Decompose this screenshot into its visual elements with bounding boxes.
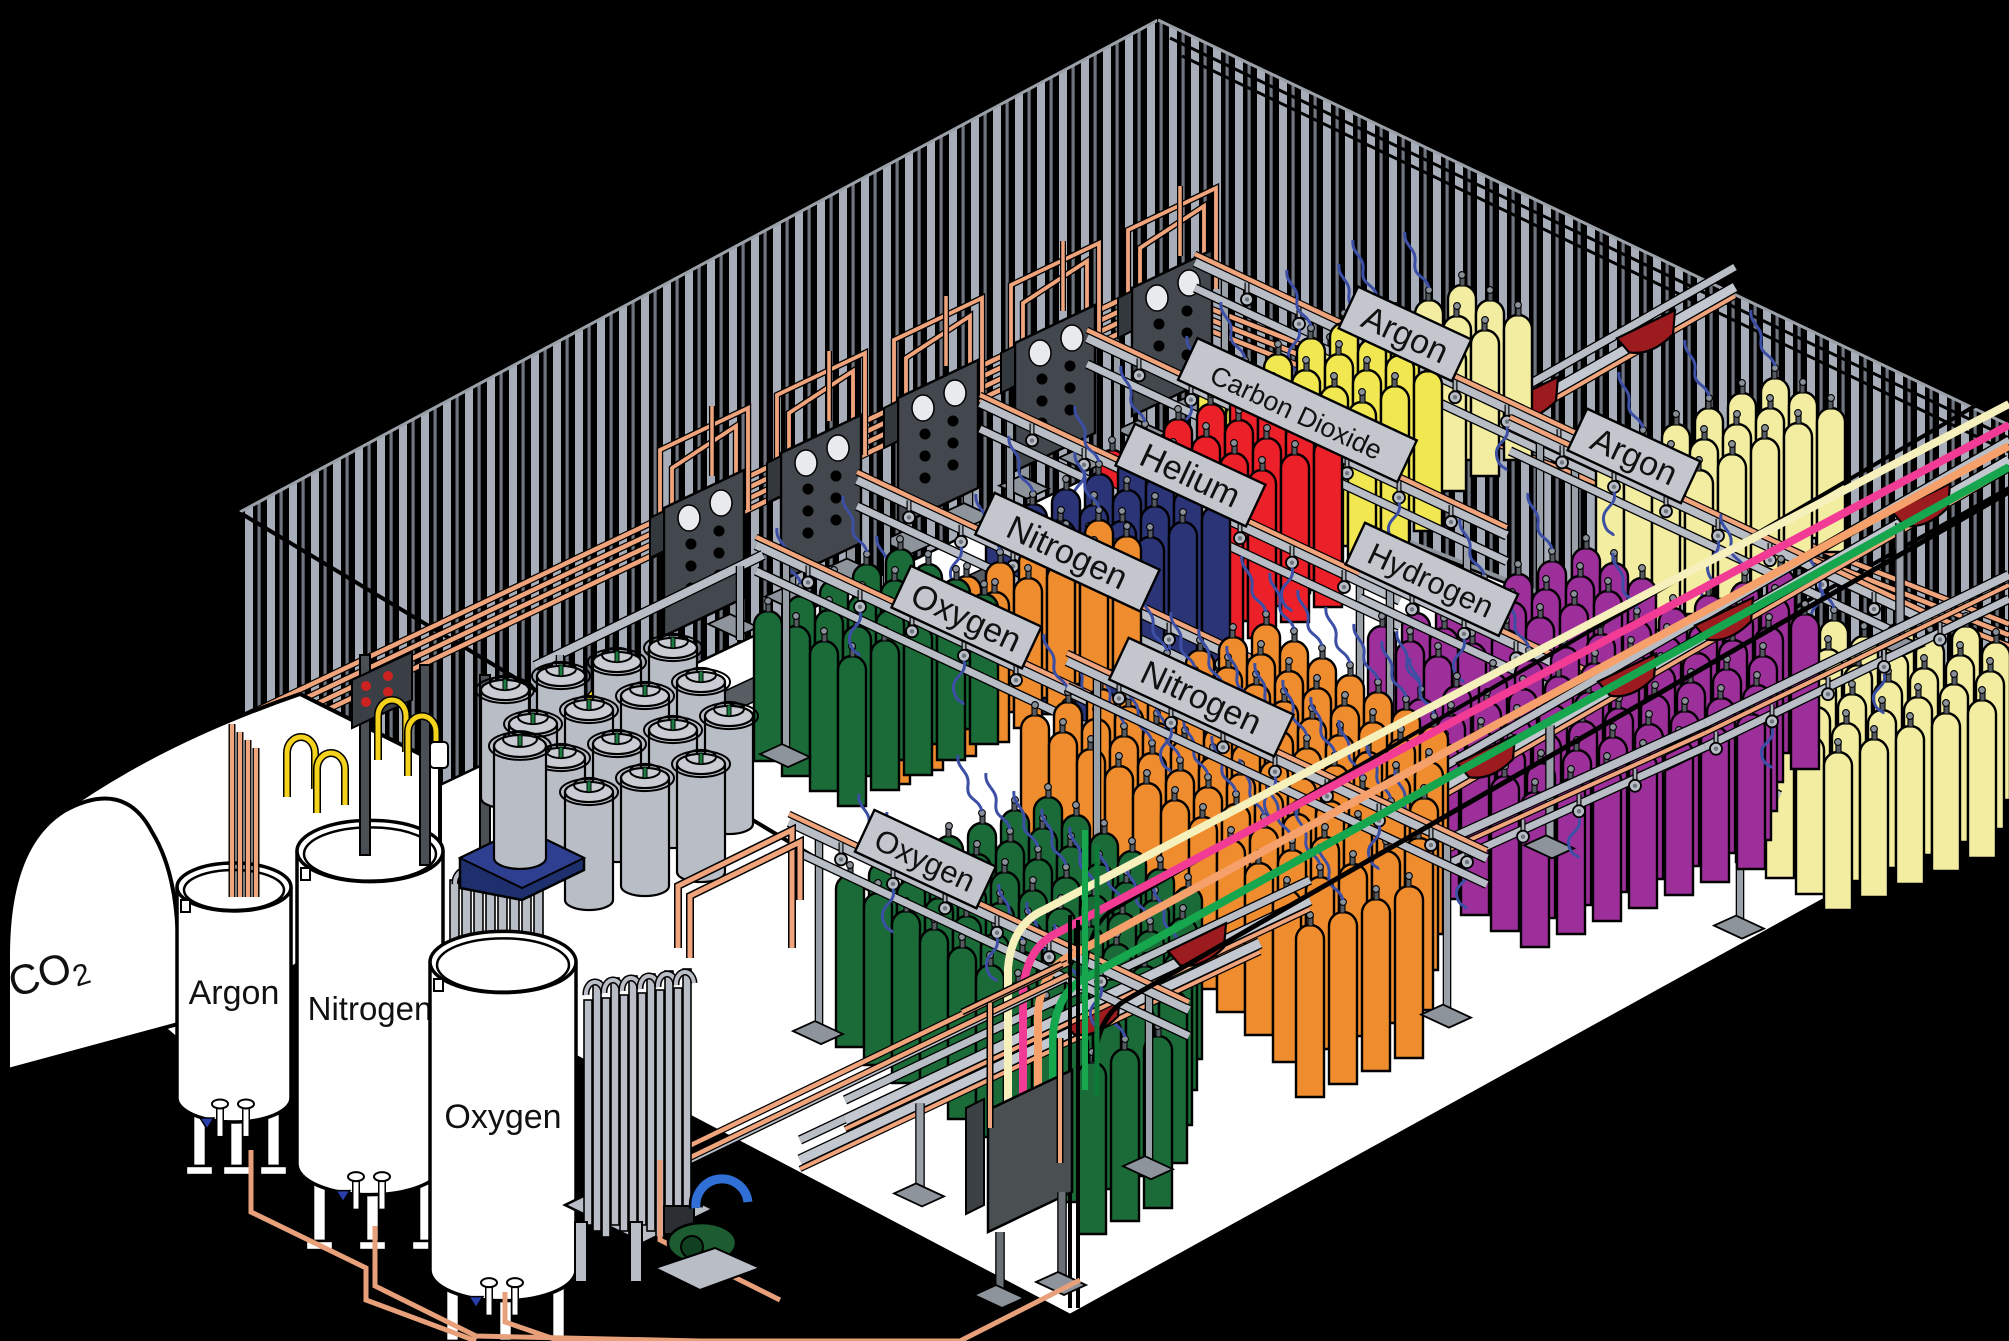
svg-text:Oxygen: Oxygen: [444, 1098, 561, 1136]
svg-text:Nitrogen: Nitrogen: [308, 990, 433, 1027]
svg-text:Argon: Argon: [189, 974, 280, 1012]
